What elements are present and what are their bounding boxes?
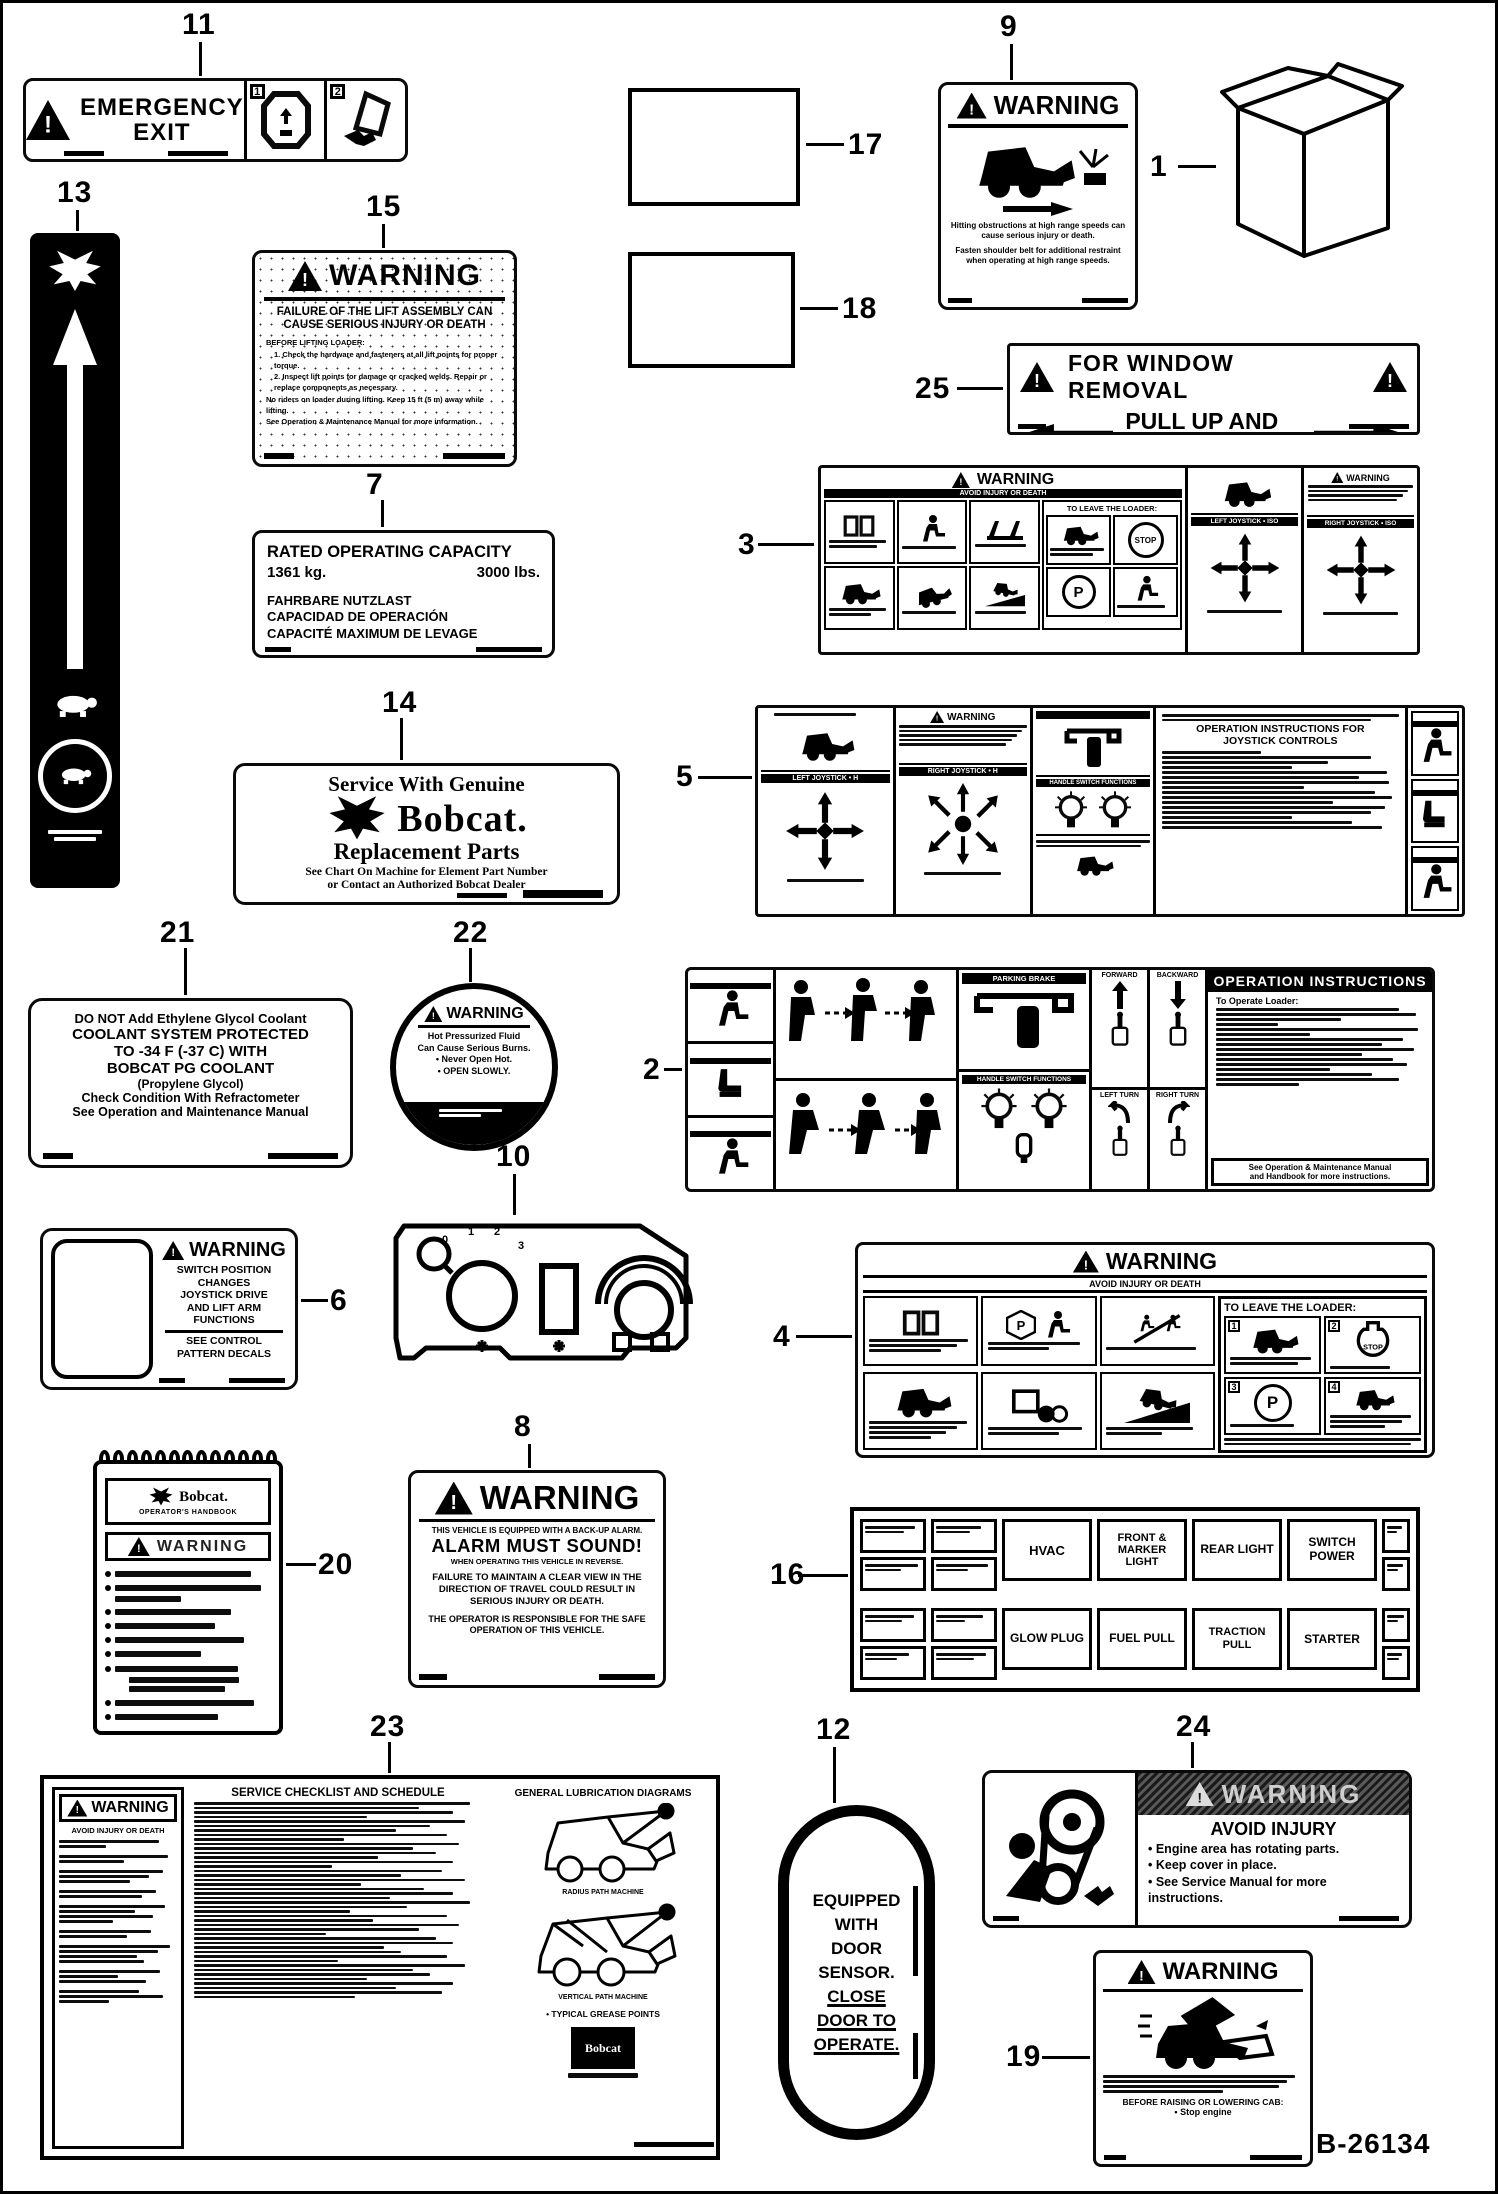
leader-10 <box>513 1174 516 1215</box>
switch-l3: JOYSTICK DRIVE <box>161 1289 287 1302</box>
to-operate-loader: To Operate Loader: <box>1216 996 1424 1006</box>
fine-print <box>1018 424 1046 429</box>
fine-print <box>1104 2155 1126 2160</box>
machine-pictogram <box>795 726 855 762</box>
leader-7 <box>381 500 384 527</box>
genuine-l1: Service With Genuine <box>246 772 607 797</box>
warning-paragraph <box>1103 2075 1303 2093</box>
callout-9: 9 <box>1000 10 1018 44</box>
backup-l2: WHEN OPERATING THIS VEHICLE IN REVERSE. <box>419 1557 655 1566</box>
bobcat-head-icon <box>47 249 103 295</box>
warning-word: WARNING <box>157 1538 248 1556</box>
machine-cargo-icon <box>1009 1385 1069 1425</box>
switch-l1: SWITCH POSITION <box>161 1264 287 1277</box>
warning-triangle-icon: ! <box>930 711 944 723</box>
armrest-sequence-pictogram <box>779 973 949 1065</box>
lift-b1: BEFORE LIFTING LOADER: <box>266 337 505 348</box>
fine-print <box>902 609 962 616</box>
fine-print <box>1230 1422 1316 1429</box>
fuse-mini-label <box>1382 1557 1410 1591</box>
warning-triangle-icon: ! <box>1128 1960 1156 1984</box>
switch-l6: SEE CONTROL <box>161 1335 287 1348</box>
seat-icon <box>1415 796 1455 832</box>
leader-12 <box>833 1747 836 1803</box>
callout-13: 13 <box>57 176 92 210</box>
callout-7: 7 <box>366 468 384 502</box>
joystick-icon <box>1107 1011 1133 1047</box>
callout-6: 6 <box>330 1284 348 1318</box>
callout-23: 23 <box>370 1710 405 1744</box>
genuine-l2: Replacement Parts <box>246 839 607 865</box>
callout-21: 21 <box>160 916 195 950</box>
push-window-icon <box>260 90 312 150</box>
operator-icon <box>708 989 754 1029</box>
loader-dig-icon <box>837 578 881 606</box>
lower-arms-icon <box>1059 522 1099 546</box>
fuse-mini-label <box>1382 1646 1410 1680</box>
warning-word: WARNING <box>480 1479 640 1517</box>
right-joystick-title: RIGHT JOYSTICK • ISO <box>1307 519 1414 528</box>
fuse-mini-label <box>860 1608 926 1642</box>
leader-14 <box>400 718 403 760</box>
capacity-lbs: 3000 lbs. <box>477 564 540 581</box>
fine-print <box>443 453 505 459</box>
leader-1 <box>1178 165 1216 168</box>
callout-11: 11 <box>182 8 216 42</box>
fine-print <box>869 1419 971 1441</box>
warning-triangle-icon: ! <box>424 1006 442 1022</box>
coolant-l4: BOBCAT PG COOLANT <box>39 1060 342 1077</box>
backup-big: ALARM MUST SOUND! <box>419 1535 655 1557</box>
fine-print <box>829 606 889 618</box>
fine-print <box>993 1916 1019 1921</box>
loader-bucket-icon <box>890 1381 952 1419</box>
lift-title-2: CAUSE SERIOUS INJURY OR DEATH <box>264 319 505 332</box>
lift-title-1: FAILURE OF THE LIFT ASSEMBLY CAN <box>264 306 505 319</box>
leader-18 <box>800 307 838 310</box>
warning-triangle-icon: ! <box>1331 472 1343 483</box>
fine-print <box>1224 1438 1421 1445</box>
fuse-switch-power: SWITCH POWER <box>1287 1519 1377 1581</box>
turtle-icon <box>48 691 102 721</box>
forward-title: FORWARD <box>1094 972 1145 979</box>
joystick-icon <box>1108 1125 1132 1157</box>
decal-joystick-controls-5: LEFT JOYSTICK • H !WARNING RIGHT JOYSTIC… <box>755 705 1465 917</box>
fuse-fuel-pull: FUEL PULL <box>1097 1608 1187 1670</box>
fine-print <box>265 647 291 652</box>
coolant-l3: TO -34 F (-37 C) WITH <box>39 1043 342 1060</box>
capacity-fr: CAPACITÉ MAXIMUM DE LEVAGE <box>267 626 540 642</box>
fine-print <box>1162 714 1399 721</box>
warning-word: WARNING <box>189 1239 286 1262</box>
ops-title-1: OPERATION INSTRUCTIONS FOR <box>1162 723 1399 735</box>
radiator-l3: • Never Open Hot. <box>396 1054 552 1066</box>
warning-triangle-icon: ! <box>1186 1782 1214 1806</box>
fuse-starter: STARTER <box>1287 1608 1377 1670</box>
decal-blank-18 <box>628 252 795 368</box>
cap-black-segment <box>396 1102 552 1145</box>
operator-icon <box>1413 863 1457 901</box>
fine-print <box>829 538 889 550</box>
step-number: 2 <box>330 84 345 99</box>
warning-bullet-text <box>59 1840 177 2003</box>
callout-22: 22 <box>453 916 488 950</box>
radiator-l1: Hot Pressurized Fluid <box>396 1031 552 1043</box>
fine-print <box>1216 1008 1424 1086</box>
callout-18: 18 <box>842 292 877 326</box>
control-panel-illustration: 0 1 2 3 <box>390 1218 696 1368</box>
door-l7: OPERATE. <box>814 2035 900 2055</box>
impact-icon <box>1076 147 1110 187</box>
fuse-glow-plug: GLOW PLUG <box>1002 1608 1092 1670</box>
window-removal-l1: FOR WINDOW REMOVAL <box>1068 350 1359 404</box>
fine-print <box>1323 610 1398 617</box>
callout-14: 14 <box>382 686 417 720</box>
decal-cab-raise-warning: ! WARNING BEFORE RAISING OR LOWERING CAB… <box>1093 1950 1313 2167</box>
coolant-l1: DO NOT Add Ethylene Glycol Coolant <box>39 1011 342 1026</box>
fine-print <box>1082 298 1128 303</box>
fuse-mini-label <box>860 1519 926 1553</box>
decal-warning-panels-4: ! WARNING AVOID INJURY OR DEATH P TO LEA… <box>855 1242 1435 1458</box>
fine-print <box>476 647 542 652</box>
no-entry-icon: P <box>1006 1310 1036 1340</box>
handle-switch-title: HANDLE SWITCH FUNCTIONS <box>1036 779 1150 787</box>
lift-b3: 2. Inspect lift points for damage or cra… <box>274 371 505 394</box>
machine-pictogram <box>1218 476 1272 508</box>
warning-triangle-icon: ! <box>288 261 322 291</box>
callout-8: 8 <box>514 1410 532 1444</box>
door-outline <box>51 1239 153 1379</box>
joystick-pattern-icon <box>1207 530 1283 606</box>
down-arrow-icon <box>1170 981 1186 1009</box>
decal-backup-alarm: ! WARNING THIS VEHICLE IS EQUIPPED WITH … <box>408 1470 666 1688</box>
warning-triangle-icon: ! <box>952 472 970 488</box>
figure-id: B-26134 <box>1316 2128 1430 2160</box>
callout-2: 2 <box>643 1053 661 1087</box>
warning-word: WARNING <box>446 1005 523 1023</box>
brand-bobcat: Bobcat. <box>397 797 528 841</box>
slow-range-emblem <box>38 739 112 813</box>
see-manual-2: and Handbook for more instructions. <box>1216 1172 1424 1181</box>
dial-icon <box>977 1087 1021 1131</box>
controls-icon <box>985 516 1025 542</box>
warning-triangle-icon: ! <box>1020 362 1054 392</box>
fine-print <box>1349 424 1409 429</box>
fine-print <box>1330 1413 1416 1430</box>
fuse-mini-label <box>1382 1608 1410 1642</box>
door-l4: SENSOR. <box>818 1963 895 1983</box>
fine-print <box>1339 1916 1399 1921</box>
fine-print <box>899 725 1028 746</box>
svg-text:P: P <box>1017 1318 1026 1333</box>
fuse-hvac: HVAC <box>1002 1519 1092 1581</box>
leader-4 <box>796 1335 852 1338</box>
warning-word: WARNING <box>977 471 1054 489</box>
callout-3: 3 <box>738 528 756 562</box>
warning-triangle-icon: ! <box>67 1800 87 1817</box>
operator-icon <box>708 1137 754 1177</box>
dial-icon <box>1095 790 1135 830</box>
right-joystick-h-title: RIGHT JOYSTICK • H <box>899 767 1028 776</box>
window-removal-l2: PULL UP AND OUT <box>1125 408 1301 435</box>
fine-print <box>1207 608 1282 615</box>
fine-print <box>1330 1364 1416 1371</box>
callout-4: 4 <box>773 1320 791 1354</box>
trigger-icon <box>1007 1133 1041 1163</box>
capacity-kg: 1361 kg. <box>267 564 326 581</box>
decal-emergency-exit: ! EMERGENCY EXIT 1 2 <box>23 78 408 162</box>
step-3: 3 <box>1228 1381 1240 1393</box>
turtle-icon <box>55 765 95 787</box>
fine-print <box>787 877 864 884</box>
fine-print-vertical <box>913 1886 918 1976</box>
fine-print <box>45 827 105 844</box>
switch-l5: FUNCTIONS <box>161 1314 287 1327</box>
handle-switch-title: HANDLE SWITCH FUNCTIONS <box>962 1075 1086 1084</box>
loader-icon <box>966 134 1076 200</box>
leader-16 <box>798 1574 848 1577</box>
right-turn-title: RIGHT TURN <box>1152 1092 1203 1099</box>
decal-window-removal: ! FOR WINDOW REMOVAL ! PULL UP AND OUT <box>1007 343 1420 435</box>
no-riders-icon <box>1128 1311 1186 1345</box>
direction-arrow-icon <box>1003 202 1073 216</box>
coolant-l6: Check Condition With Refractometer <box>39 1091 342 1105</box>
joystick-icon <box>1165 1011 1191 1047</box>
switch-l2: CHANGES <box>161 1277 287 1290</box>
handbook-subtitle: OPERATOR'S HANDBOOK <box>112 1509 264 1516</box>
callout-19: 19 <box>1006 2040 1041 2074</box>
genuine-l3: See Chart On Machine for Element Part Nu… <box>246 866 607 879</box>
decal-speed-strip <box>30 233 120 888</box>
curve-right-icon <box>1166 1101 1190 1123</box>
see-manual-1: See Operation & Maintenance Manual <box>1216 1163 1424 1172</box>
step-1: 1 <box>1228 1320 1240 1332</box>
avoid-injury-band: AVOID INJURY OR DEATH <box>824 489 1182 498</box>
manual-book-icon <box>901 1309 941 1337</box>
seat-icon <box>710 1064 752 1102</box>
leader-19 <box>1042 2056 1090 2059</box>
fine-print <box>264 453 294 459</box>
fine-print <box>457 893 507 898</box>
joystick-pattern-icon <box>1323 532 1399 608</box>
radiator-l4: • OPEN SLOWLY. <box>396 1066 552 1078</box>
fuse-mini-label <box>860 1646 926 1680</box>
leave-loader-title: TO LEAVE THE LOADER: <box>1046 504 1178 513</box>
svg-text:STOP: STOP <box>1363 1342 1383 1351</box>
backward-title: BACKWARD <box>1152 972 1203 979</box>
decal-lift-warning: ! WARNING FAILURE OF THE LIFT ASSEMBLY C… <box>252 250 517 467</box>
fine-print <box>1162 751 1399 829</box>
leader-3 <box>758 543 814 546</box>
up-arrow-icon <box>1112 981 1128 1009</box>
lower-lift-arms-icon <box>1247 1323 1299 1355</box>
ops-title-2: JOYSTICK CONTROLS <box>1162 735 1399 747</box>
fine-print <box>1250 2155 1302 2160</box>
fine-print <box>439 1107 509 1119</box>
leave-loader-title: TO LEAVE THE LOADER: <box>1224 1302 1421 1314</box>
decal-rated-capacity: RATED OPERATING CAPACITY 1361 kg. 3000 l… <box>252 530 555 658</box>
stop-bulb-icon: STOP <box>1353 1320 1393 1364</box>
decal-genuine-parts: Service With Genuine Bobcat. Replacement… <box>233 763 620 905</box>
joystick-icon <box>1166 1125 1190 1157</box>
leader-24 <box>1191 1742 1194 1768</box>
leader-13 <box>76 210 79 231</box>
door-l5: CLOSE <box>827 1987 886 2007</box>
leader-9 <box>1010 44 1013 80</box>
radius-path-caption: RADIUS PATH MACHINE <box>493 1889 713 1896</box>
engine-b2: • Keep cover in place. <box>1148 1857 1399 1873</box>
hatched-warning-header: ! WARNING <box>1138 1773 1409 1815</box>
seatbelt-person-icon <box>917 514 947 544</box>
leader-25 <box>957 387 1003 390</box>
grease-points-note: • TYPICAL GREASE POINTS <box>493 2009 713 2019</box>
checklist-lines <box>194 1802 482 1998</box>
warning-triangle-icon: ! <box>957 93 987 119</box>
operation-instructions-header: OPERATION INSTRUCTIONS <box>1208 970 1432 992</box>
leader-22 <box>469 948 472 982</box>
radius-path-machine-drawing <box>528 1803 678 1889</box>
radiator-l2: Can Cause Serious Burns. <box>396 1043 552 1055</box>
fine-print <box>988 1340 1090 1352</box>
fine-print <box>168 151 228 156</box>
slope-icon <box>985 581 1025 609</box>
capacity-de: FAHRBARE NUTZLAST <box>267 593 540 609</box>
switch-l4: AND LIFT ARM <box>161 1302 287 1315</box>
decal-service-checklist: ! WARNING AVOID INJURY OR DEATH SERVICE … <box>40 1775 720 2160</box>
fine-print <box>64 151 104 156</box>
machine-tip-icon <box>912 581 952 609</box>
warning-word: WARNING <box>947 712 995 723</box>
emergency-exit-line2: EXIT <box>80 120 244 145</box>
dial-icon <box>1051 790 1091 830</box>
parts-diagram-page: { "page": { "code": "B-26134" }, "callou… <box>0 0 1498 2194</box>
switch-l7: PATTERN DECALS <box>161 1348 287 1361</box>
vertical-path-caption: VERTICAL PATH MACHINE <box>493 1994 713 2001</box>
capacity-es: CAPACIDAD DE OPERACIÓN <box>267 609 540 625</box>
armrest-sequence-pictogram <box>779 1084 949 1176</box>
leader-11 <box>199 42 202 76</box>
handbook-brand: Bobcat. <box>179 1489 228 1506</box>
fine-print <box>599 1674 655 1680</box>
decal-door-sensor: EQUIPPED WITH DOOR SENSOR. CLOSE DOOR TO… <box>778 1805 935 2140</box>
leader-6 <box>301 1299 328 1302</box>
fine-print <box>774 711 877 718</box>
step-4: 4 <box>1328 1381 1340 1393</box>
operator-icon <box>1413 727 1457 765</box>
fuse-mini-label <box>931 1519 997 1553</box>
engine-title: AVOID INJURY <box>1148 1819 1399 1840</box>
leader-2 <box>664 1068 682 1071</box>
fine-print <box>1117 603 1173 610</box>
decal-coolant: DO NOT Add Ethylene Glycol Coolant COOLA… <box>28 998 353 1168</box>
warning-triangle-icon: ! <box>1373 362 1407 392</box>
warning-word: WARNING <box>1222 1779 1362 1810</box>
fine-print <box>159 1378 185 1383</box>
joystick-pattern-icon <box>782 788 868 874</box>
belt-pulley-pinch-icon <box>1000 1784 1120 1914</box>
decal-engine-rotating: ! WARNING AVOID INJURY • Engine area has… <box>982 1770 1412 1928</box>
leader-17 <box>806 143 844 146</box>
fine-print <box>902 544 962 551</box>
up-arrow-icon <box>53 309 97 669</box>
knob-pos-0: 0 <box>442 1234 448 1246</box>
fine-print <box>1308 485 1413 501</box>
fuse-mini-label <box>931 1557 997 1591</box>
coolant-l5: (Propylene Glycol) <box>39 1077 342 1091</box>
high-speed-p2: Fasten shoulder belt for additional rest… <box>948 246 1128 266</box>
knob-pos-1: 1 <box>468 1226 474 1238</box>
avoid-injury-band: AVOID INJURY OR DEATH <box>863 1275 1427 1293</box>
vertical-path-machine-drawing <box>523 1902 683 1994</box>
fine-print <box>1036 840 1150 847</box>
left-joystick-h-title: LEFT JOYSTICK • H <box>761 774 890 783</box>
decal-high-speed-warning: ! WARNING Hitting obstructions at high r… <box>938 82 1138 310</box>
joystick-pattern-icon <box>920 781 1006 867</box>
decal-operation-instructions: PARKING BRAKE HANDLE SWITCH FUNCTIONS FO… <box>685 967 1435 1192</box>
callout-25: 25 <box>915 372 950 406</box>
fine-print <box>1230 1355 1316 1367</box>
checklist-title: SERVICE CHECKLIST AND SCHEDULE <box>194 1787 482 1799</box>
callout-17: 17 <box>848 128 883 162</box>
high-speed-p1: Hitting obstructions at high range speed… <box>948 221 1128 241</box>
warning-word: WARNING <box>1163 1958 1279 1986</box>
left-turn-title: LEFT TURN <box>1094 1092 1145 1099</box>
door-l2: WITH <box>835 1915 878 1935</box>
decal-switch-position: ! WARNING SWITCH POSITION CHANGES JOYSTI… <box>40 1228 298 1390</box>
coolant-l7: See Operation and Maintenance Manual <box>39 1105 342 1119</box>
fine-print <box>1050 546 1106 558</box>
stop-bulb-icon: STOP <box>1128 522 1164 558</box>
fine-print <box>975 542 1035 549</box>
decal-radiator-cap: ! WARNING Hot Pressurized Fluid Can Caus… <box>390 983 558 1151</box>
emergency-exit-line1: EMERGENCY <box>80 95 244 120</box>
fuse-mini-label <box>931 1646 997 1680</box>
knob-pos-3: 3 <box>518 1240 524 1252</box>
fine-print <box>523 890 603 898</box>
dial-icon <box>1027 1087 1071 1131</box>
tilted-cab-loader-icon <box>1128 1996 1278 2070</box>
door-l3: DOOR <box>831 1939 882 1959</box>
fine-print <box>975 609 1035 616</box>
avoid-injury-sub: AVOID INJURY OR DEATH <box>59 1826 177 1835</box>
parking-brake-title: PARKING BRAKE <box>962 973 1086 984</box>
loader-icon <box>1072 849 1114 879</box>
bobcat-head-icon <box>325 795 389 843</box>
carton-box-illustration <box>1218 48 1404 276</box>
fine-print <box>419 1674 447 1680</box>
exit-machine-icon <box>1351 1383 1395 1413</box>
leader-23 <box>388 1742 391 1773</box>
knob-pos-2: 2 <box>494 1226 500 1238</box>
curve-left-icon <box>1108 1101 1132 1123</box>
decal-warning-panels-3: ! WARNING AVOID INJURY OR DEATH TO LEAVE… <box>818 465 1420 655</box>
fuse-traction-pull: TRACTION PULL <box>1192 1608 1282 1670</box>
slope-operation-icon <box>1124 1385 1190 1425</box>
leader-5 <box>698 776 752 779</box>
fine-print-band <box>1036 711 1150 719</box>
warning-word: WARNING <box>1346 473 1390 483</box>
manual-book-icon <box>842 514 876 538</box>
door-l1: EQUIPPED <box>813 1891 901 1911</box>
fine-print <box>229 1378 285 1383</box>
step-number: 1 <box>250 84 265 99</box>
warning-word: WARNING <box>1106 1248 1217 1275</box>
warning-triangle-icon: ! <box>1073 1251 1099 1273</box>
fine-print <box>924 870 1001 877</box>
callout-20: 20 <box>318 1548 353 1582</box>
lift-b4: No riders on loader during lifting. Keep… <box>266 394 505 417</box>
backup-p1: FAILURE TO MAINTAIN A CLEAR VIEW IN THE … <box>419 1572 655 1608</box>
